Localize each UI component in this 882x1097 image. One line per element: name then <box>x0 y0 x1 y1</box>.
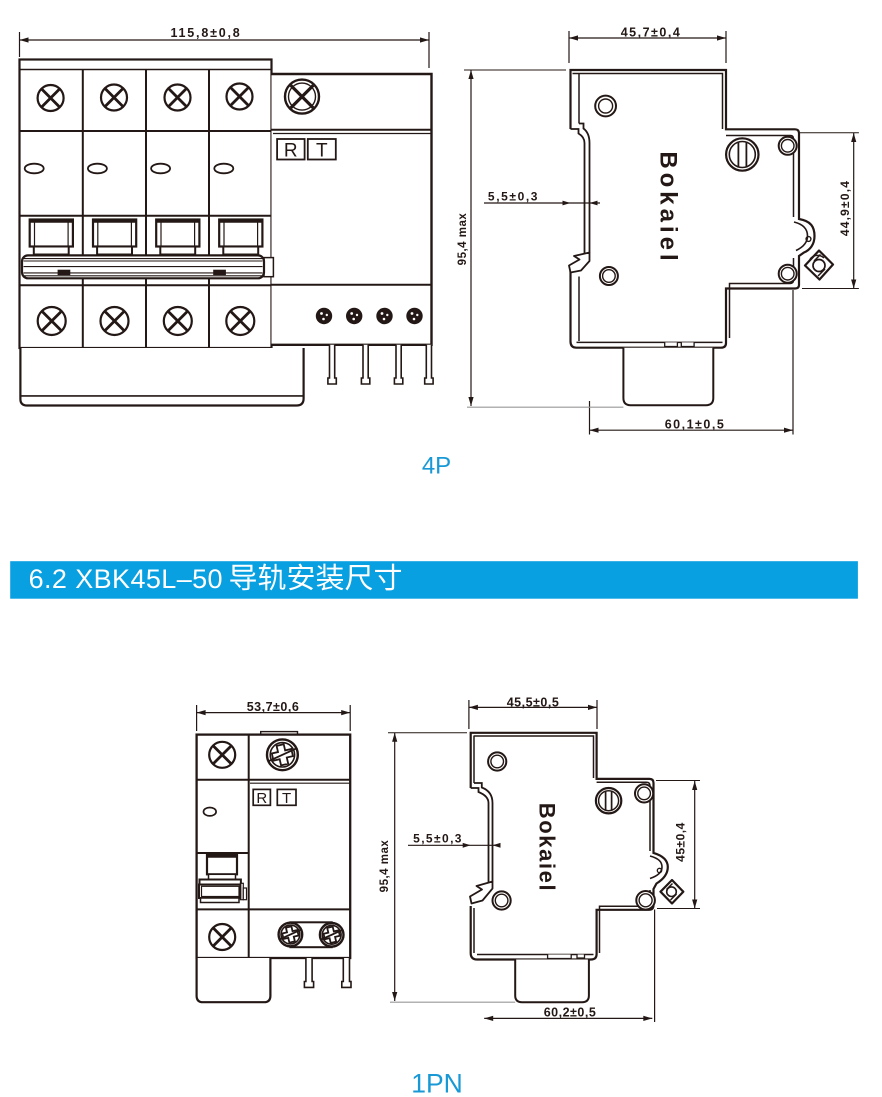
svg-text:Bokaiel: Bokaiel <box>655 151 682 264</box>
svg-text:95,4 max: 95,4 max <box>457 213 469 266</box>
svg-text:1PN: 1PN <box>411 1069 463 1097</box>
svg-text:115,8±0,8: 115,8±0,8 <box>170 26 241 40</box>
svg-text:4P: 4P <box>422 453 451 480</box>
svg-text:T: T <box>282 790 291 807</box>
svg-text:6.2 XBK45L–50: 6.2 XBK45L–50 <box>29 564 223 594</box>
svg-text:53,7±0,6: 53,7±0,6 <box>247 700 300 714</box>
svg-text:R: R <box>256 790 267 807</box>
svg-text:95,4 max: 95,4 max <box>379 840 391 893</box>
svg-text:5,5±0,3: 5,5±0,3 <box>413 832 463 846</box>
svg-text:45±0,4: 45±0,4 <box>674 822 688 862</box>
svg-text:Bokaiel: Bokaiel <box>535 803 560 892</box>
svg-text:5,5±0,3: 5,5±0,3 <box>488 189 539 203</box>
svg-text:T: T <box>316 141 328 162</box>
svg-text:60,1±0,5: 60,1±0,5 <box>665 417 726 431</box>
svg-text:45,7±0,4: 45,7±0,4 <box>621 26 682 40</box>
svg-text:45,5±0,5: 45,5±0,5 <box>507 695 560 709</box>
svg-text:R: R <box>284 141 298 162</box>
svg-text:60,2±0,5: 60,2±0,5 <box>544 1006 597 1020</box>
svg-text:44,9±0,4: 44,9±0,4 <box>838 180 852 236</box>
